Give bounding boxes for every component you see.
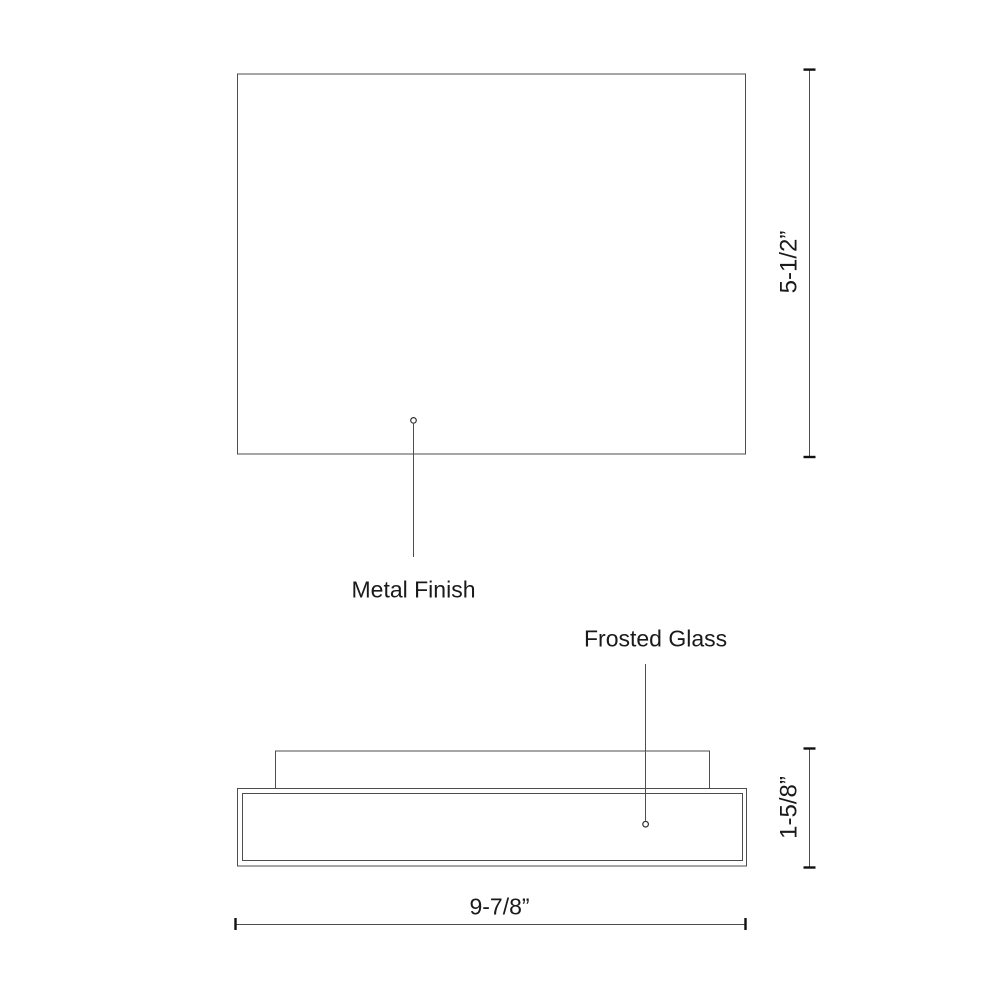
svg-text:9-7/8”: 9-7/8”	[469, 893, 529, 919]
svg-text:Frosted Glass: Frosted Glass	[584, 626, 727, 652]
svg-text:1-5/8”: 1-5/8”	[776, 776, 803, 839]
svg-text:Metal Finish: Metal Finish	[352, 577, 476, 603]
svg-text:5-1/2”: 5-1/2”	[776, 231, 803, 294]
